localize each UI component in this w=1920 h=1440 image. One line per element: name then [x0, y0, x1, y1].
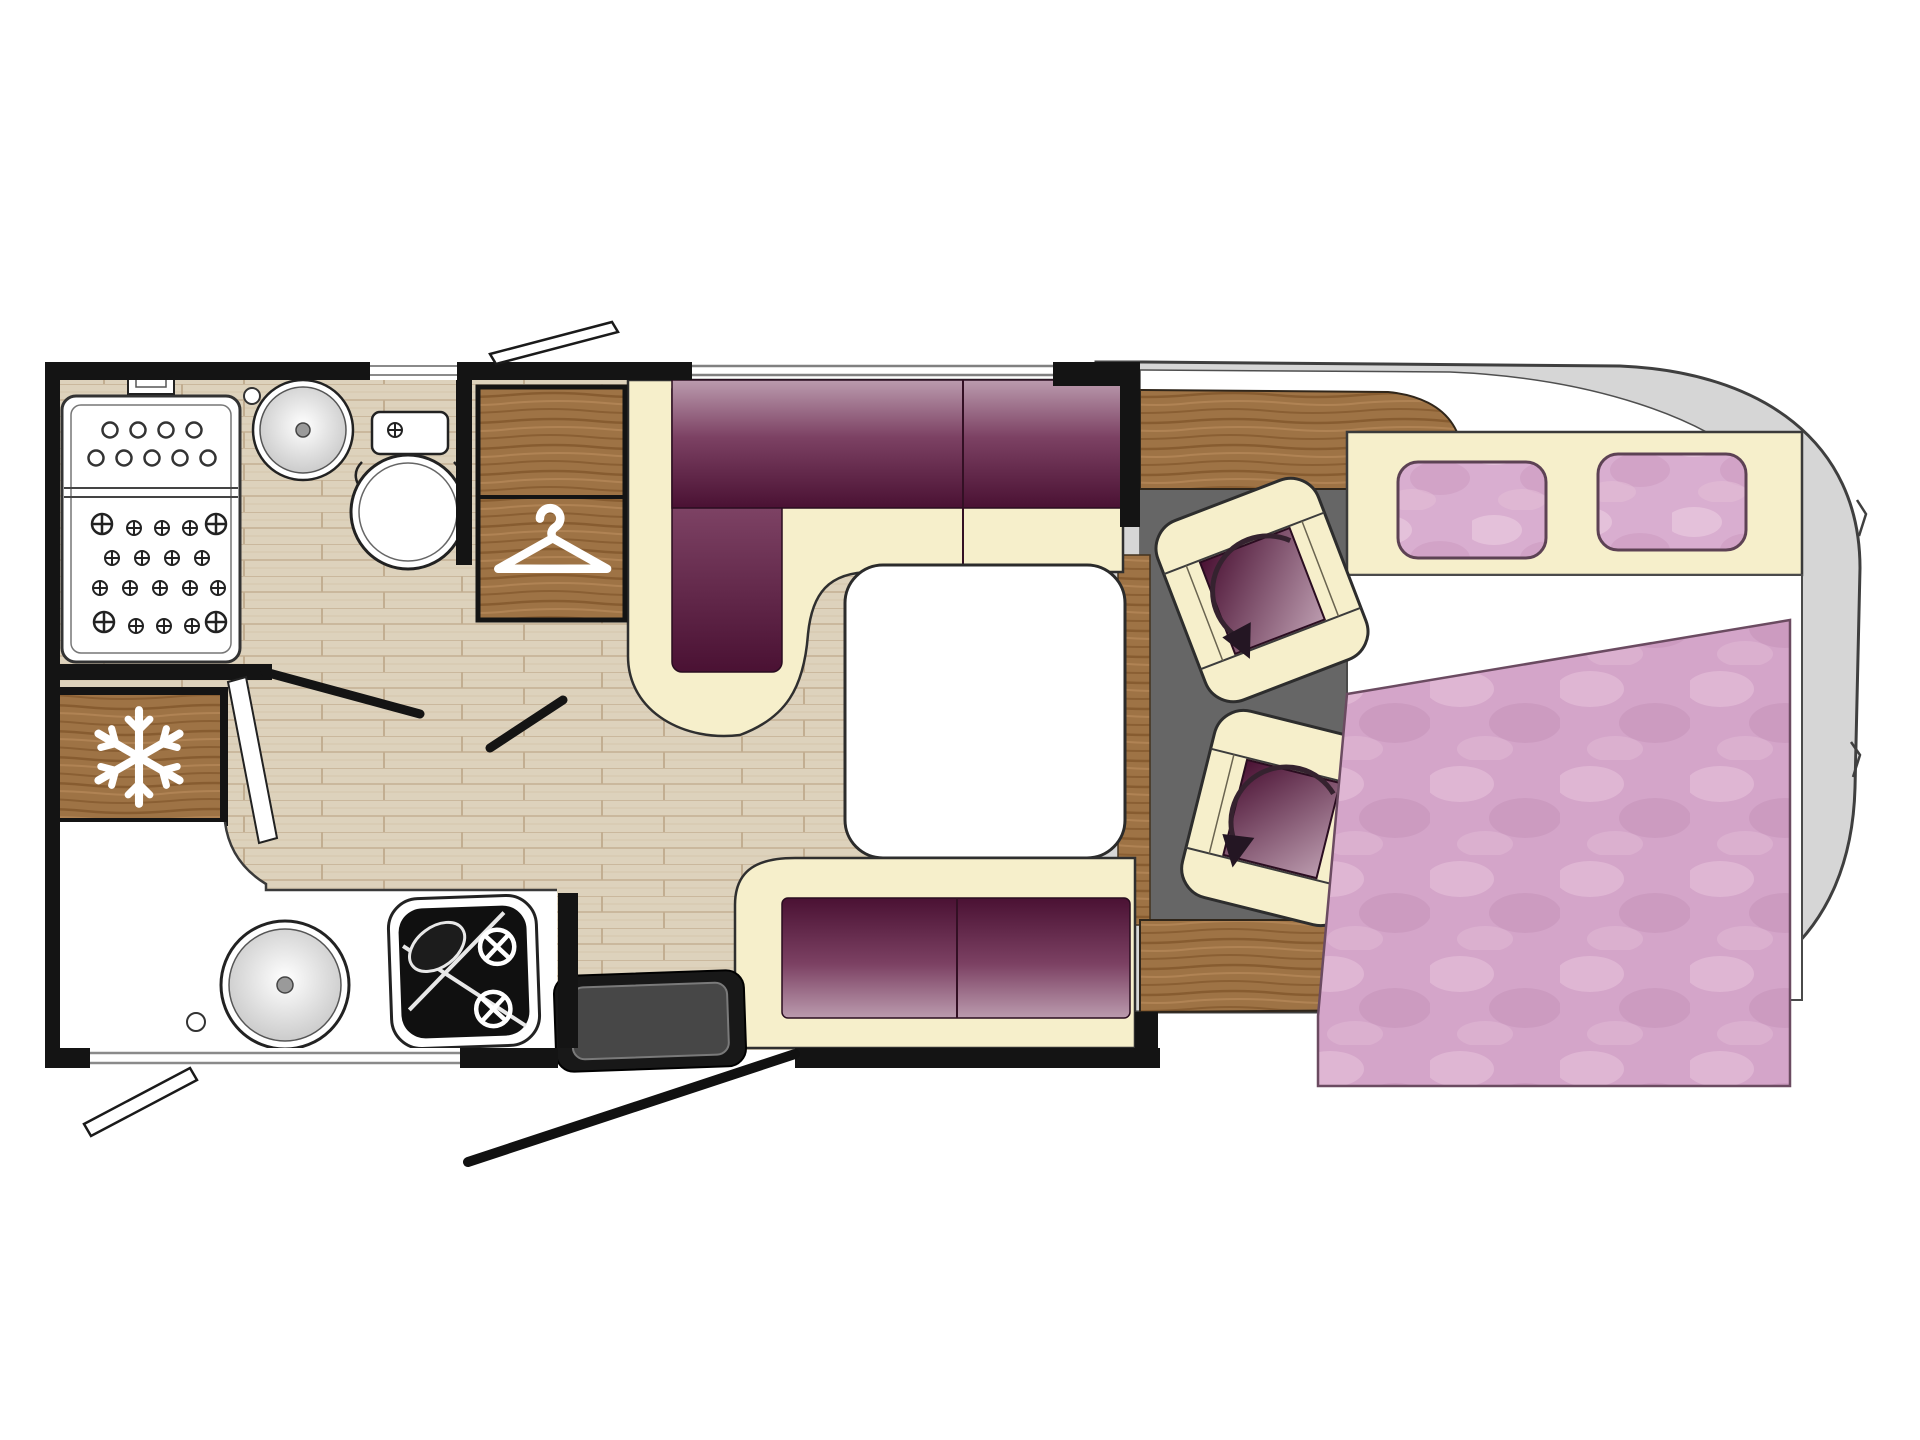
bench-end-wall — [1135, 1012, 1158, 1068]
wall-top — [45, 362, 370, 380]
cab-section — [1096, 362, 1866, 1086]
wall-top — [457, 362, 692, 380]
floor-plan-drawing — [0, 0, 1920, 1440]
pillow — [1398, 462, 1546, 558]
wall-left — [45, 362, 60, 1068]
wall-bottom — [45, 1048, 90, 1068]
dinette-table — [845, 565, 1125, 858]
bathroom-partition — [456, 380, 472, 565]
wardrobe — [478, 387, 625, 620]
tap — [244, 388, 260, 404]
l-sofa-back-cushion — [672, 380, 1123, 508]
refrigerator — [48, 687, 228, 826]
window-kitchen — [90, 1048, 460, 1068]
toilet-cistern — [372, 412, 448, 454]
window-dinette — [692, 361, 1053, 378]
shower — [62, 364, 240, 662]
tap — [187, 1013, 205, 1031]
galley-end-wall — [558, 893, 578, 1048]
sofa-end-wall — [1120, 380, 1140, 527]
window-bathroom — [370, 362, 457, 380]
entry-step — [553, 970, 746, 1073]
hob — [387, 894, 540, 1049]
wall-bottom — [460, 1048, 558, 1068]
bed-duvet — [1318, 620, 1790, 1086]
wall-bottom — [795, 1048, 1160, 1068]
bathroom-wall — [45, 664, 272, 680]
floor-plan-canvas: Motorhome floor plan – top-down layout d… — [0, 0, 1920, 1440]
pillow — [1598, 454, 1746, 550]
